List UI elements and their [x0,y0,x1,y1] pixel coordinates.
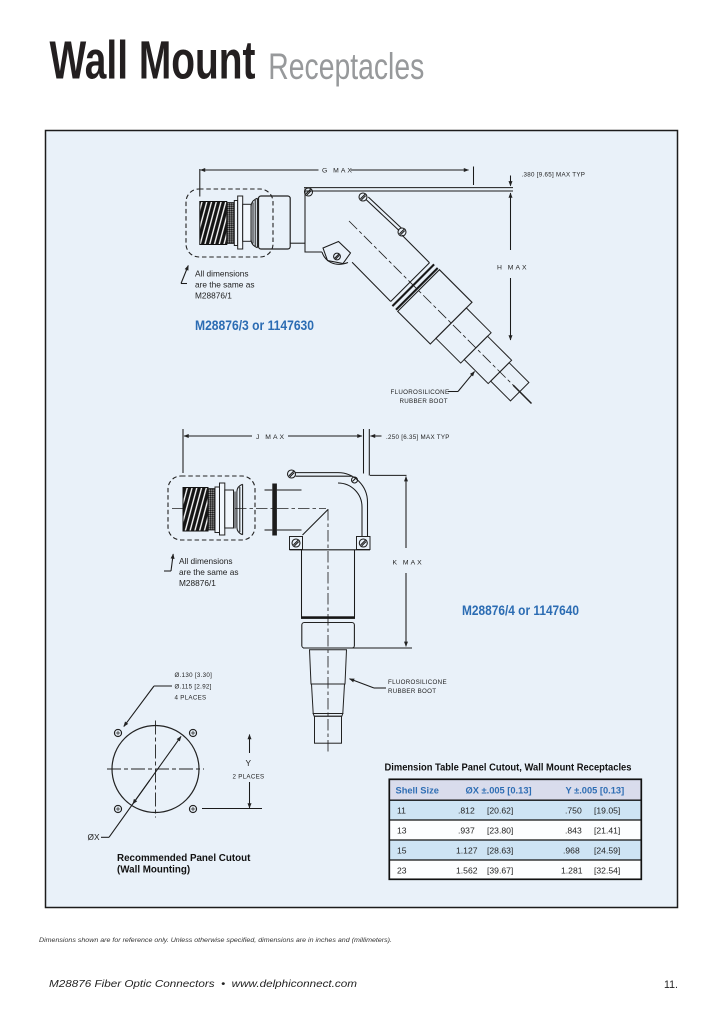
svg-text:M28876/3 or 1147630: M28876/3 or 1147630 [195,318,314,333]
svg-text:RUBBER BOOT: RUBBER BOOT [388,688,436,695]
svg-text:[23.80]: [23.80] [487,826,513,836]
svg-text:Shell Size: Shell Size [396,786,439,796]
svg-text:M28876 Fiber Optic Connectors: M28876 Fiber Optic Connectors • www.delp… [49,979,357,990]
svg-text:H MAX: H MAX [497,265,529,272]
svg-text:Ø.130 [3.30]: Ø.130 [3.30] [175,672,213,679]
svg-text:K MAX: K MAX [393,560,424,567]
svg-text:M28876/4 or 1147640: M28876/4 or 1147640 [462,603,579,618]
svg-text:All dimensions: All dimensions [179,556,233,566]
svg-text:1.562: 1.562 [456,865,478,875]
svg-text:2 PLACES: 2 PLACES [233,774,265,781]
svg-text:All dimensions: All dimensions [195,269,249,279]
svg-text:are the same as: are the same as [179,567,239,577]
svg-text:M28876/1: M28876/1 [179,578,216,588]
svg-text:FLUOROSILICONE: FLUOROSILICONE [391,389,450,396]
svg-text:11: 11 [397,806,406,816]
svg-text:ØX: ØX [88,832,100,842]
svg-text:.812: .812 [458,806,475,816]
svg-text:J MAX: J MAX [256,434,286,441]
svg-text:[20.62]: [20.62] [487,806,513,816]
svg-text:.968: .968 [563,845,580,855]
svg-text:4 PLACES: 4 PLACES [175,695,207,702]
svg-text:11.: 11. [664,979,678,991]
svg-text:23: 23 [397,865,407,875]
svg-text:Receptacles: Receptacles [268,45,424,87]
svg-text:13: 13 [397,826,407,836]
svg-text:.250 [6.35] MAX TYP: .250 [6.35] MAX TYP [386,434,450,441]
svg-text:[24.59]: [24.59] [594,845,620,855]
svg-text:ØX ±.005 [0.13]: ØX ±.005 [0.13] [466,786,532,796]
svg-text:.380 [9.65] MAX TYP: .380 [9.65] MAX TYP [522,172,586,179]
svg-text:15: 15 [397,845,407,855]
svg-text:(Wall Mounting): (Wall Mounting) [117,865,190,876]
svg-text:Wall Mount: Wall Mount [50,31,256,91]
svg-text:RUBBER BOOT: RUBBER BOOT [400,398,448,405]
svg-text:[19.05]: [19.05] [594,806,620,816]
svg-text:[32.54]: [32.54] [594,865,620,875]
svg-text:1.127: 1.127 [456,845,478,855]
svg-text:are the same as: are the same as [195,280,255,290]
svg-text:[39.67]: [39.67] [487,865,513,875]
svg-text:FLUOROSILICONE: FLUOROSILICONE [388,679,447,686]
svg-text:Ø.115 [2.92]: Ø.115 [2.92] [175,684,212,691]
svg-text:.750: .750 [565,806,582,816]
svg-text:.937: .937 [458,826,475,836]
svg-text:1.281: 1.281 [561,865,583,875]
svg-text:Dimensions shown are for refer: Dimensions shown are for reference only.… [39,937,392,944]
svg-text:.843: .843 [565,826,582,836]
svg-text:[28.63]: [28.63] [487,845,513,855]
svg-text:Y ±.005 [0.13]: Y ±.005 [0.13] [566,786,625,796]
svg-text:Recommended Panel Cutout: Recommended Panel Cutout [117,853,251,864]
svg-text:Y: Y [246,758,252,768]
svg-text:G MAX: G MAX [322,168,354,175]
svg-text:[21.41]: [21.41] [594,826,620,836]
svg-text:Dimension Table Panel Cutout,: Dimension Table Panel Cutout, Wall Mount… [385,763,633,774]
svg-text:M28876/1: M28876/1 [195,291,232,301]
